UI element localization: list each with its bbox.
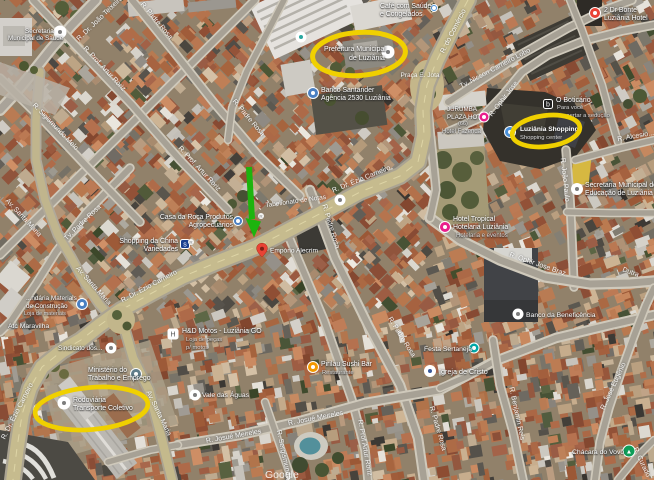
svg-text:Hotel Tropical: Hotel Tropical — [453, 216, 496, 223]
svg-text:Hotelaria Luziânia: Hotelaria Luziânia — [453, 224, 508, 231]
svg-text:Para você: Para você — [557, 105, 583, 111]
svg-text:Agência 2530 Luziânia: Agência 2530 Luziânia — [321, 95, 391, 102]
svg-text:Luziânia Hotel: Luziânia Hotel — [604, 15, 648, 22]
svg-text:...ndária Materiais: ...ndária Materiais — [26, 295, 77, 302]
svg-text:s: s — [183, 242, 187, 249]
svg-text:Secretaria Municipal de: Secretaria Municipal de — [585, 182, 654, 189]
svg-text:Rodoviária: Rodoviária — [73, 397, 106, 404]
svg-text:Shopping center: Shopping center — [520, 135, 562, 141]
svg-text:Agropecuários: Agropecuários — [189, 222, 234, 229]
svg-text:Secretaria: Secretaria — [25, 28, 54, 35]
svg-text:Variedades: Variedades — [144, 246, 179, 253]
svg-text:JURUMBA: JURUMBA — [447, 106, 478, 113]
svg-text:Shopping da China: Shopping da China — [119, 238, 178, 245]
svg-text:Vale das Águas: Vale das Águas — [202, 390, 250, 399]
svg-text:Banco Santander: Banco Santander — [321, 87, 375, 94]
svg-text:H&D Motos - Luziânia GO: H&D Motos - Luziânia GO — [182, 328, 262, 335]
svg-text:Praça E. Jota: Praça E. Jota — [400, 72, 439, 79]
svg-text:Ministério do: Ministério do — [88, 367, 127, 374]
svg-text:de Luziânia: de Luziânia — [349, 55, 385, 62]
svg-text:Banco da Beneficência: Banco da Beneficência — [526, 312, 596, 319]
svg-text:Hotel Fazenda: Hotel Fazenda — [442, 129, 482, 135]
svg-text:Educação de Luziânia: Educação de Luziânia — [585, 190, 653, 197]
svg-text:b: b — [546, 102, 550, 109]
svg-text:Empório Alecrim: Empório Alecrim — [270, 248, 319, 255]
svg-text:Igreja de Cristo: Igreja de Cristo — [439, 367, 488, 376]
svg-text:Restaurante: Restaurante — [322, 370, 354, 376]
svg-text:2 Dr Bonte: 2 Dr Bonte — [604, 7, 637, 14]
svg-text:Pirilau Sushi Bar: Pirilau Sushi Bar — [321, 361, 373, 368]
svg-text:Festa Sertaneja: Festa Sertaneja — [424, 346, 472, 353]
svg-text:O Boticário: O Boticário — [556, 97, 591, 104]
svg-text:Sindicato dos...: Sindicato dos... — [58, 345, 103, 352]
svg-text:▲: ▲ — [626, 448, 632, 455]
svg-text:Chácara do Vovô: Chácara do Vovô — [572, 449, 624, 456]
svg-text:p/ motos: p/ motos — [186, 345, 208, 351]
svg-text:(66): (66) — [458, 121, 468, 127]
svg-text:Casa da Roça Produtos: Casa da Roça Produtos — [160, 214, 234, 221]
svg-text:Prefeitura Municipal: Prefeitura Municipal — [324, 46, 386, 53]
svg-text:Café com Saúde: Café com Saúde — [380, 3, 431, 10]
svg-text:Transporte Coletivo: Transporte Coletivo — [73, 405, 133, 412]
svg-text:H: H — [170, 332, 175, 339]
svg-text:Atc Maravilha: Atc Maravilha — [8, 323, 49, 330]
svg-text:de Construção: de Construção — [26, 303, 68, 310]
svg-text:e Congelados: e Congelados — [380, 11, 423, 18]
svg-text:Google: Google — [265, 469, 299, 480]
svg-text:Luziânia Shopping: Luziânia Shopping — [520, 126, 579, 133]
svg-text:Municipal de Saúde: Municipal de Saúde — [8, 35, 64, 42]
svg-text:Loja de materiais: Loja de materiais — [24, 311, 66, 317]
svg-text:Trabalho e Emprego: Trabalho e Emprego — [88, 375, 151, 382]
svg-text:Loja de peças: Loja de peças — [186, 337, 222, 343]
svg-text:Hotelaria e eventos: Hotelaria e eventos — [456, 233, 508, 239]
